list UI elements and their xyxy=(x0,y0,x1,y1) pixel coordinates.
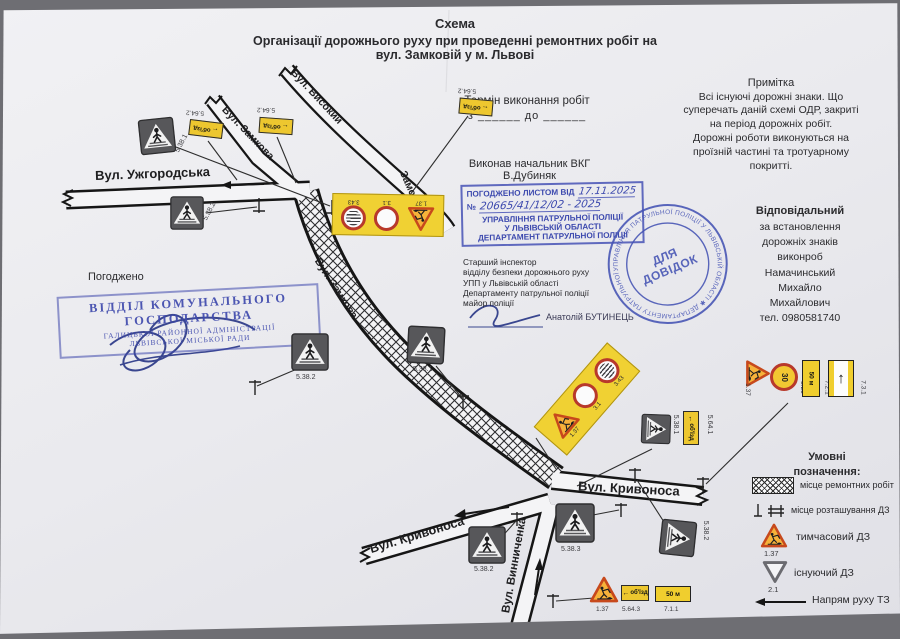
detour-arrow-icon: ← xyxy=(281,123,288,130)
page-title: Схема Організації дорожнього руху при пр… xyxy=(235,16,675,62)
legend-sign-code: 1.37 xyxy=(764,549,779,558)
sign-code-label: 5.64.3 xyxy=(622,606,640,613)
detour-text: об'їзд xyxy=(263,122,281,129)
distance-value: 50 м xyxy=(666,591,680,598)
sign-code-label: 5.38.2 xyxy=(296,374,315,381)
pedestrian-crossing-sign-icon xyxy=(137,116,177,156)
agreed-label: Погоджено xyxy=(88,271,144,283)
approval-heading: ПОГОДЖЕНО ЛИСТОМ ВІД xyxy=(466,188,574,199)
sign-code-label: 7.1.1 xyxy=(664,606,678,613)
note-block: Примітка Всі існуючі дорожні знаки. Що с… xyxy=(652,76,890,174)
note-line: Всі існуючі дорожні знаки. Що xyxy=(652,91,890,105)
legend-item-label: існуючий ДЗ xyxy=(794,567,854,579)
legend-sign-code: 2.1 xyxy=(768,585,778,594)
give-way-sign-icon xyxy=(762,560,788,584)
approval-date-handwritten: 17.11.2025 xyxy=(578,185,637,198)
sign-code-label: 5.38.1 xyxy=(672,415,679,434)
sign-code-label: 5.38.3 xyxy=(561,546,580,553)
speed-limit-value: 30 xyxy=(780,373,789,382)
pedestrian-crossing-sign-icon xyxy=(555,503,595,543)
detour-arrow-icon: ← xyxy=(211,126,219,134)
legend-placement-symbols xyxy=(753,502,787,520)
distance-50m-sign: 50 м xyxy=(802,360,820,397)
pedestrian-crossing-sign-icon xyxy=(658,518,698,558)
distance-50m-sign: 50 м xyxy=(655,586,691,602)
responsible-line: Михайлович xyxy=(716,296,884,311)
sign-code-label: 5.64.1 xyxy=(706,415,713,434)
pedestrian-crossing-sign-icon xyxy=(170,196,204,230)
legend-item-label: тимчасовий ДЗ xyxy=(796,531,870,543)
sign-code-label: 1.37 xyxy=(415,199,427,205)
sign-cell: 3.43 xyxy=(341,198,367,230)
detour-sign: ←об'їзд xyxy=(258,117,293,135)
sign-code-label: 5.38.2 xyxy=(702,521,709,540)
executor-block: Виконав начальник ВКГ В.Дубиняк xyxy=(437,158,622,182)
sign-code-label: 7.3.1 xyxy=(860,380,867,394)
note-line: покритті. xyxy=(652,160,890,174)
restriction-sign-icon xyxy=(341,205,366,230)
temporary-signs-panel-a: 1.37 3.1 3.43 xyxy=(332,193,445,237)
detour-arrow-icon: ← xyxy=(622,590,629,597)
sign-code-label: 5.38.1 xyxy=(413,366,432,373)
note-line: суперечать даній схемі ОДР, закриті xyxy=(652,104,890,118)
lane-direction-sign: ↑ xyxy=(828,360,854,397)
sign-code-label: 3.1 xyxy=(383,199,391,205)
detour-text: об'їзд xyxy=(630,590,647,596)
detour-text: об'їзд xyxy=(688,423,694,440)
detour-arrow-icon: ← xyxy=(481,104,489,112)
responsible-line: виконроб xyxy=(716,250,884,265)
legend-item-label: Напрям руху ТЗ xyxy=(812,594,890,606)
legend-heading-line1: Умовні xyxy=(762,450,892,465)
scanned-traffic-scheme-photo: Схема Організації дорожнього руху при пр… xyxy=(0,0,900,639)
responsible-line: тел. 0980581740 xyxy=(716,311,884,326)
responsible-line: дорожніх знаків xyxy=(716,235,884,250)
paper-sheet: Схема Організації дорожнього руху при пр… xyxy=(0,0,900,639)
pedestrian-crossing-sign-icon xyxy=(468,526,506,564)
responsible-line: Михайло xyxy=(716,281,884,296)
responsible-line: Намачинський xyxy=(716,266,884,281)
detour-sign: ←об'їзд xyxy=(683,411,699,445)
detour-sign: ←об'їзд xyxy=(621,585,649,601)
roadworks-sign-icon xyxy=(589,576,619,603)
speed-limit-30-sign: 30 xyxy=(770,363,798,391)
approval-number-prefix: № xyxy=(467,203,476,212)
responsible-block: Відповідальний за встановлення дорожніх … xyxy=(716,204,884,326)
no-traffic-sign-icon xyxy=(374,206,399,231)
responsible-line: Відповідальний xyxy=(716,204,884,220)
responsible-line: за встановлення xyxy=(716,220,884,235)
note-line: Дорожні роботи виконуються на xyxy=(652,132,890,146)
approval-number-handwritten: 20665/41/12/02 - 2025 xyxy=(479,198,602,214)
pedestrian-crossing-sign-icon xyxy=(640,413,671,444)
title-line1: Схема xyxy=(235,16,675,31)
roadworks-sign-icon xyxy=(407,206,435,231)
sign-code-label: 5.64.2 xyxy=(257,106,275,113)
legend-item-label: місце ремонтних робіт xyxy=(800,480,894,490)
roadworks-sign-icon xyxy=(760,523,788,548)
sign-code-label: 1.37 xyxy=(596,606,609,613)
legend-repair-area-swatch xyxy=(752,477,794,494)
note-line: проїзній частині та тротуарному xyxy=(652,146,890,160)
note-line: на період дорожніх робіт. xyxy=(652,118,890,132)
lane-arrow-icon: ↑ xyxy=(837,370,845,387)
title-line3: вул. Замковій у м. Львові xyxy=(235,48,675,62)
sign-code-label: 5.64.2 xyxy=(458,87,476,95)
detour-arrow-icon: ← xyxy=(688,415,695,422)
executor-line2: В.Дубиняк xyxy=(437,170,622,182)
sign-code-label: 3.43 xyxy=(348,198,360,204)
sign-cell: 1.37 xyxy=(544,403,587,445)
distance-value: 50 м xyxy=(807,372,814,386)
pedestrian-crossing-sign-icon xyxy=(406,325,446,365)
sign-code-label: 5.64.2 xyxy=(186,109,204,117)
detour-text: об'їзд xyxy=(193,124,211,132)
note-heading: Примітка xyxy=(652,76,890,91)
executor-line1: Виконав начальник ВКГ xyxy=(437,158,622,170)
detour-text: об'їзд xyxy=(463,103,481,110)
legend-item-label: місце розташування ДЗ xyxy=(791,505,890,515)
detour-sign: ←об'їзд xyxy=(458,98,493,117)
sign-cell: 1.37 xyxy=(407,199,436,231)
sign-code-label: 1.37 xyxy=(744,383,751,396)
pedestrian-crossing-sign-icon xyxy=(291,333,329,371)
sign-code-label: 5.38.2 xyxy=(474,566,493,573)
sign-cell: 3.1 xyxy=(374,199,400,231)
title-line2: Організації дорожнього руху при проведен… xyxy=(235,34,675,48)
